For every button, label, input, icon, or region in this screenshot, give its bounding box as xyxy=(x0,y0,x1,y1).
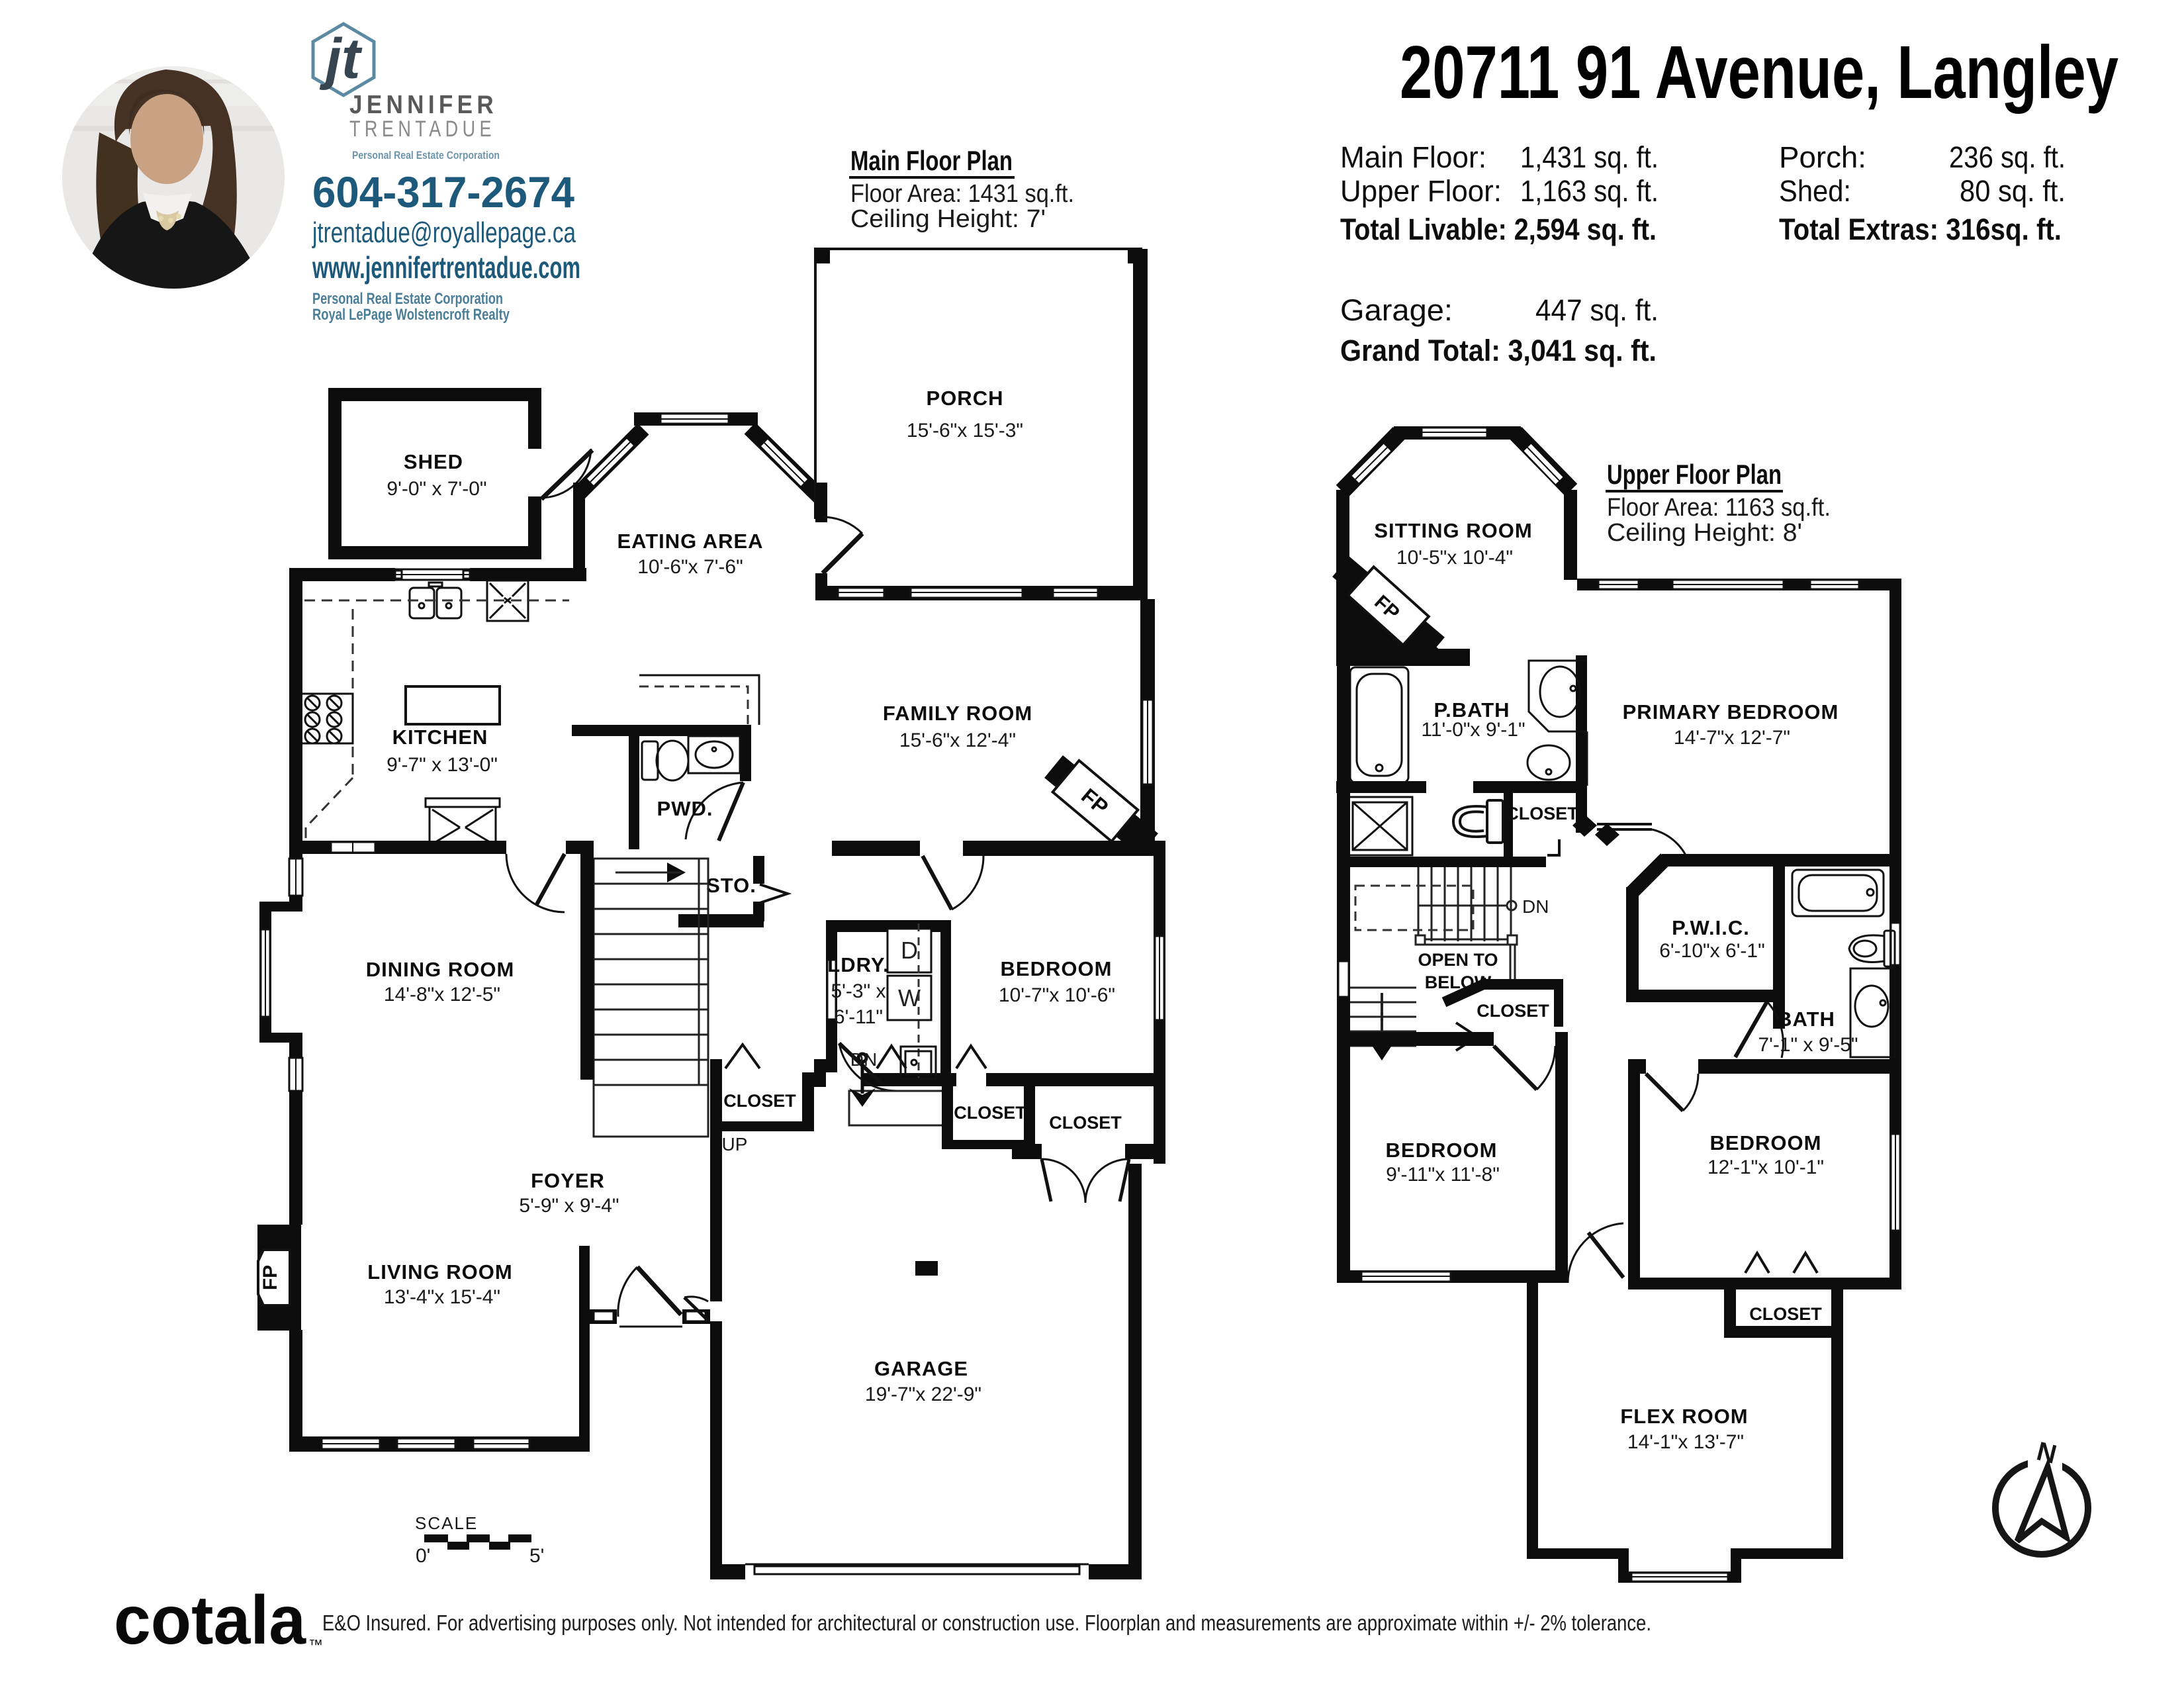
svg-text:CLOSET: CLOSET xyxy=(1477,1001,1549,1021)
svg-text:PORCH: PORCH xyxy=(927,387,1004,410)
svg-text:12'-1"x 10'-1": 12'-1"x 10'-1" xyxy=(1707,1156,1824,1178)
svg-text:Ceiling Height: 8': Ceiling Height: 8' xyxy=(1607,519,1802,547)
svg-text:D: D xyxy=(901,937,918,964)
svg-text:DN: DN xyxy=(1522,896,1549,917)
svg-text:Total Livable: 2,594 sq. ft.: Total Livable: 2,594 sq. ft. xyxy=(1340,212,1657,246)
svg-text:14'-1"x 13'-7": 14'-1"x 13'-7" xyxy=(1627,1431,1744,1453)
svg-text:9'-11"x 11'-8": 9'-11"x 11'-8" xyxy=(1386,1164,1500,1186)
svg-text:6'-11": 6'-11" xyxy=(834,1006,883,1028)
svg-text:Ceiling Height: 7': Ceiling Height: 7' xyxy=(850,205,1046,233)
svg-text:PRIMARY BEDROOM: PRIMARY BEDROOM xyxy=(1623,700,1839,724)
svg-text:10'-5"x 10'-4": 10'-5"x 10'-4" xyxy=(1396,547,1513,569)
svg-text:CLOSET: CLOSET xyxy=(954,1103,1026,1123)
svg-text:P.W.I.C.: P.W.I.C. xyxy=(1672,916,1750,939)
svg-text:EATING AREA: EATING AREA xyxy=(617,530,763,553)
svg-text:PWD.: PWD. xyxy=(657,797,713,820)
svg-text:Personal Real Estate Corporati: Personal Real Estate Corporation xyxy=(352,149,500,162)
svg-text:STO.: STO. xyxy=(706,874,756,897)
svg-text:CLOSET: CLOSET xyxy=(1506,804,1578,823)
svg-text:80 sq. ft.: 80 sq. ft. xyxy=(1960,174,2066,208)
svg-text:DINING ROOM: DINING ROOM xyxy=(366,958,515,981)
svg-text:FLEX ROOM: FLEX ROOM xyxy=(1620,1405,1748,1428)
svg-text:1,163 sq. ft.: 1,163 sq. ft. xyxy=(1520,174,1659,208)
svg-text:FOYER: FOYER xyxy=(531,1169,605,1192)
svg-text:SITTING ROOM: SITTING ROOM xyxy=(1374,519,1532,542)
svg-text:SHED: SHED xyxy=(404,450,463,473)
svg-text:5': 5' xyxy=(529,1545,544,1567)
svg-text:cotala: cotala xyxy=(114,1582,306,1659)
svg-text:™: ™ xyxy=(308,1636,323,1653)
svg-text:BEDROOM: BEDROOM xyxy=(1386,1139,1498,1162)
svg-text:CLOSET: CLOSET xyxy=(723,1091,796,1111)
svg-text:CLOSET: CLOSET xyxy=(1049,1113,1122,1133)
svg-text:447 sq. ft.: 447 sq. ft. xyxy=(1535,293,1659,327)
svg-text:KITCHEN: KITCHEN xyxy=(392,726,488,749)
svg-text:13'-4"x 15'-4": 13'-4"x 15'-4" xyxy=(384,1286,500,1308)
svg-text:20711 91 Avenue, Langley: 20711 91 Avenue, Langley xyxy=(1400,30,2118,114)
svg-text:14'-7"x 12'-7": 14'-7"x 12'-7" xyxy=(1674,727,1790,749)
svg-text:5'-9" x 9'-4": 5'-9" x 9'-4" xyxy=(519,1195,619,1217)
svg-text:Shed:: Shed: xyxy=(1779,174,1851,208)
svg-text:W: W xyxy=(898,984,921,1011)
svg-text:19'-7"x 22'-9": 19'-7"x 22'-9" xyxy=(865,1383,981,1405)
svg-text:604-317-2674: 604-317-2674 xyxy=(312,167,574,216)
svg-text:GARAGE: GARAGE xyxy=(874,1357,968,1380)
svg-text:OPEN TO: OPEN TO xyxy=(1418,950,1498,970)
svg-text:9'-0" x 7'-0": 9'-0" x 7'-0" xyxy=(387,478,486,500)
svg-text:5'-3" x: 5'-3" x xyxy=(831,980,886,1002)
svg-text:Porch:: Porch: xyxy=(1779,140,1866,174)
svg-text:14'-8"x 12'-5": 14'-8"x 12'-5" xyxy=(384,984,500,1006)
svg-text:jtrentadue@royallepage.ca: jtrentadue@royallepage.ca xyxy=(311,216,576,249)
svg-text:236 sq. ft.: 236 sq. ft. xyxy=(1949,140,2066,174)
svg-text:FAMILY ROOM: FAMILY ROOM xyxy=(883,702,1032,725)
svg-text:6'-10"x 6'-1": 6'-10"x 6'-1" xyxy=(1659,940,1765,962)
svg-text:Upper Floor Plan: Upper Floor Plan xyxy=(1607,459,1782,490)
svg-text:Floor Area: 1163 sq.ft.: Floor Area: 1163 sq.ft. xyxy=(1607,494,1831,522)
svg-text:jt: jt xyxy=(319,27,363,91)
svg-text:BATH: BATH xyxy=(1777,1008,1835,1031)
svg-text:FP: FP xyxy=(259,1265,281,1290)
svg-text:DN: DN xyxy=(850,1049,877,1070)
svg-text:15'-6"x 12'-4": 15'-6"x 12'-4" xyxy=(899,729,1016,751)
svg-text:Upper Floor:: Upper Floor: xyxy=(1340,174,1502,208)
svg-text:Main Floor:: Main Floor: xyxy=(1340,140,1486,174)
svg-text:Royal LePage Wolstencroft Real: Royal LePage Wolstencroft Realty xyxy=(312,306,510,324)
svg-text:BEDROOM: BEDROOM xyxy=(1001,957,1113,980)
svg-text:Grand Total: 3,041 sq. ft.: Grand Total: 3,041 sq. ft. xyxy=(1340,334,1657,367)
svg-text:Main Floor Plan: Main Floor Plan xyxy=(850,145,1013,176)
svg-text:10'-6"x 7'-6": 10'-6"x 7'-6" xyxy=(637,556,743,578)
svg-text:LIVING ROOM: LIVING ROOM xyxy=(367,1260,512,1284)
svg-text:10'-7"x 10'-6": 10'-7"x 10'-6" xyxy=(999,984,1115,1006)
svg-text:1,431 sq. ft.: 1,431 sq. ft. xyxy=(1520,140,1659,174)
svg-text:Total Extras: 316sq. ft.: Total Extras: 316sq. ft. xyxy=(1779,212,2062,246)
svg-text:Floor Area: 1431 sq.ft.: Floor Area: 1431 sq.ft. xyxy=(850,180,1074,208)
svg-text:P.BATH: P.BATH xyxy=(1433,698,1510,722)
svg-text:15'-6"x 15'-3": 15'-6"x 15'-3" xyxy=(907,420,1023,442)
svg-text:TRENTADUE: TRENTADUE xyxy=(349,117,496,142)
svg-text:CLOSET: CLOSET xyxy=(1749,1304,1822,1324)
svg-text:JENNIFER: JENNIFER xyxy=(349,91,498,119)
svg-text:LDRY.: LDRY. xyxy=(827,953,889,976)
svg-text:Garage:: Garage: xyxy=(1340,293,1453,327)
svg-text:9'-7" x 13'-0": 9'-7" x 13'-0" xyxy=(387,754,498,776)
svg-text:BEDROOM: BEDROOM xyxy=(1710,1131,1822,1154)
svg-text:0': 0' xyxy=(416,1545,430,1567)
svg-text:E&O Insured. For advertising p: E&O Insured. For advertising purposes on… xyxy=(322,1611,1651,1635)
svg-text:SCALE: SCALE xyxy=(415,1513,478,1533)
svg-text:Personal Real Estate Corporati: Personal Real Estate Corporation xyxy=(312,290,503,308)
svg-text:UP: UP xyxy=(722,1134,748,1154)
svg-text:www.jennifertrentadue.com: www.jennifertrentadue.com xyxy=(312,250,580,285)
svg-text:7'-1" x 9'-5": 7'-1" x 9'-5" xyxy=(1758,1034,1858,1056)
svg-text:11'-0"x 9'-1": 11'-0"x 9'-1" xyxy=(1421,719,1525,741)
